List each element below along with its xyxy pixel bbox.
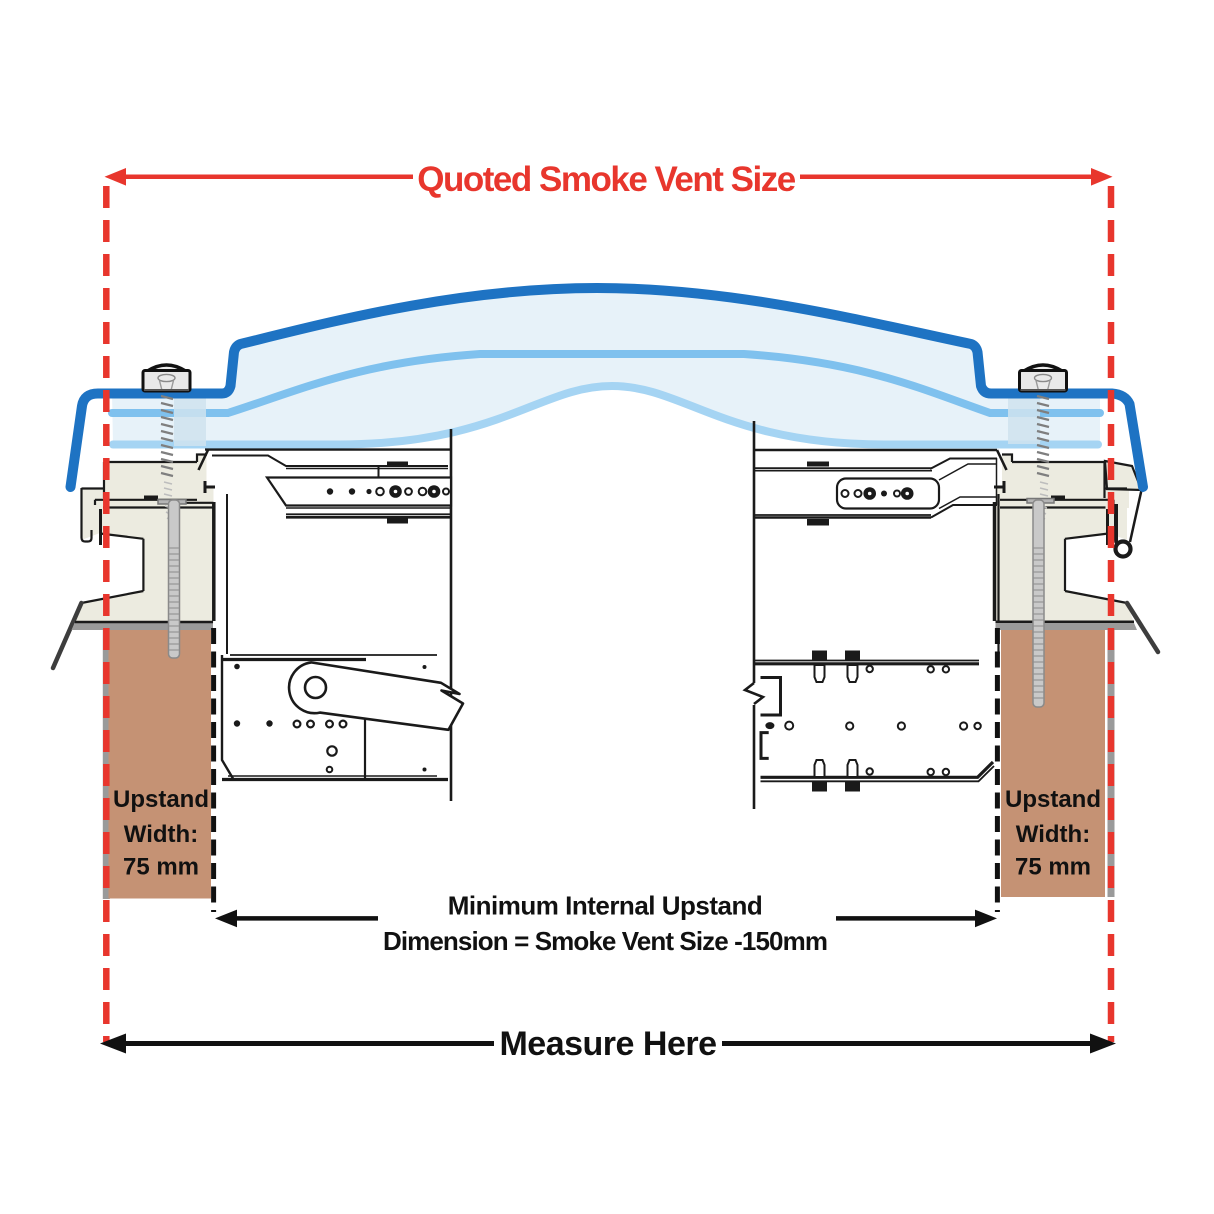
svg-text:75 mm: 75 mm — [123, 854, 199, 881]
svg-text:Quoted Smoke Vent Size: Quoted Smoke Vent Size — [417, 160, 795, 199]
svg-text:Width:: Width: — [124, 821, 198, 848]
svg-text:Dimension = Smoke Vent Size -1: Dimension = Smoke Vent Size -150mm — [383, 926, 827, 956]
svg-text:Upstand: Upstand — [113, 786, 209, 813]
svg-text:Minimum Internal Upstand: Minimum Internal Upstand — [448, 891, 762, 921]
svg-text:Upstand: Upstand — [1005, 786, 1101, 813]
svg-text:75 mm: 75 mm — [1015, 854, 1091, 881]
svg-text:Measure Here: Measure Here — [499, 1025, 716, 1063]
svg-text:Width:: Width: — [1016, 821, 1090, 848]
